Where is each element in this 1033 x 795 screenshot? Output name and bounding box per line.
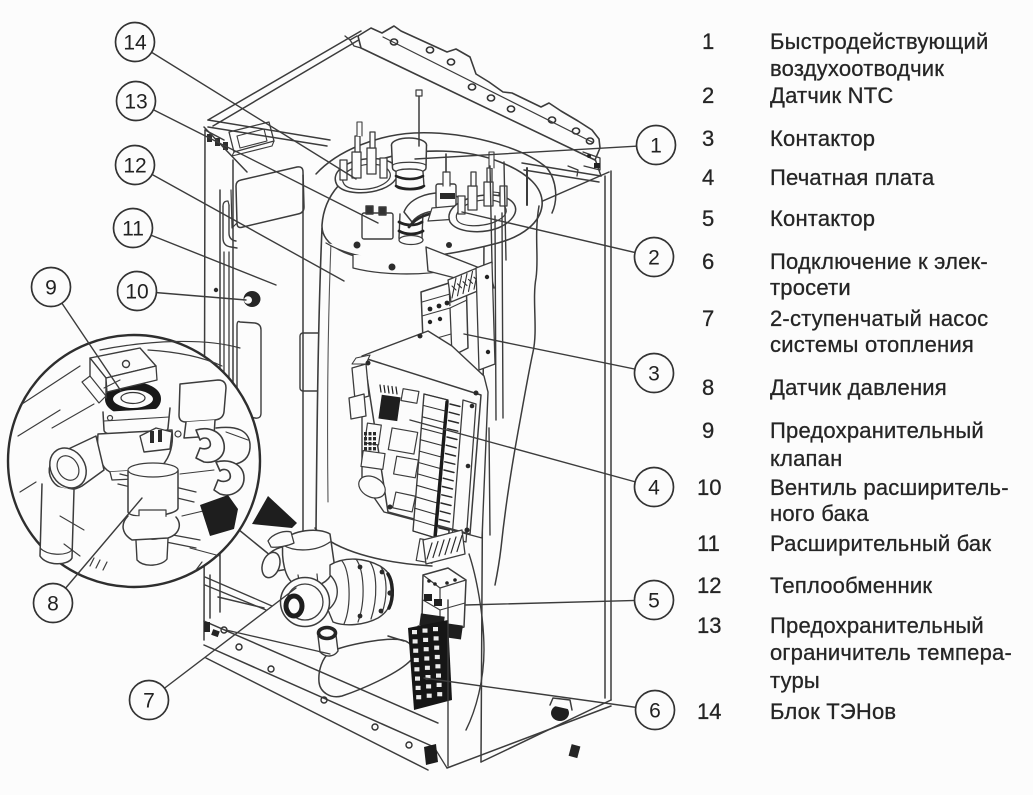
svg-text:4: 4	[648, 477, 660, 500]
svg-text:1: 1	[650, 135, 662, 158]
svg-text:3: 3	[648, 363, 660, 386]
svg-text:10: 10	[125, 281, 148, 304]
svg-text:13: 13	[124, 91, 147, 114]
svg-text:8: 8	[47, 593, 59, 616]
svg-text:5: 5	[648, 590, 660, 613]
svg-text:14: 14	[123, 32, 147, 55]
svg-text:12: 12	[123, 155, 146, 178]
svg-text:9: 9	[45, 277, 57, 300]
svg-text:11: 11	[122, 218, 144, 241]
svg-text:6: 6	[649, 700, 661, 723]
svg-text:7: 7	[143, 690, 155, 713]
svg-text:2: 2	[648, 247, 660, 270]
